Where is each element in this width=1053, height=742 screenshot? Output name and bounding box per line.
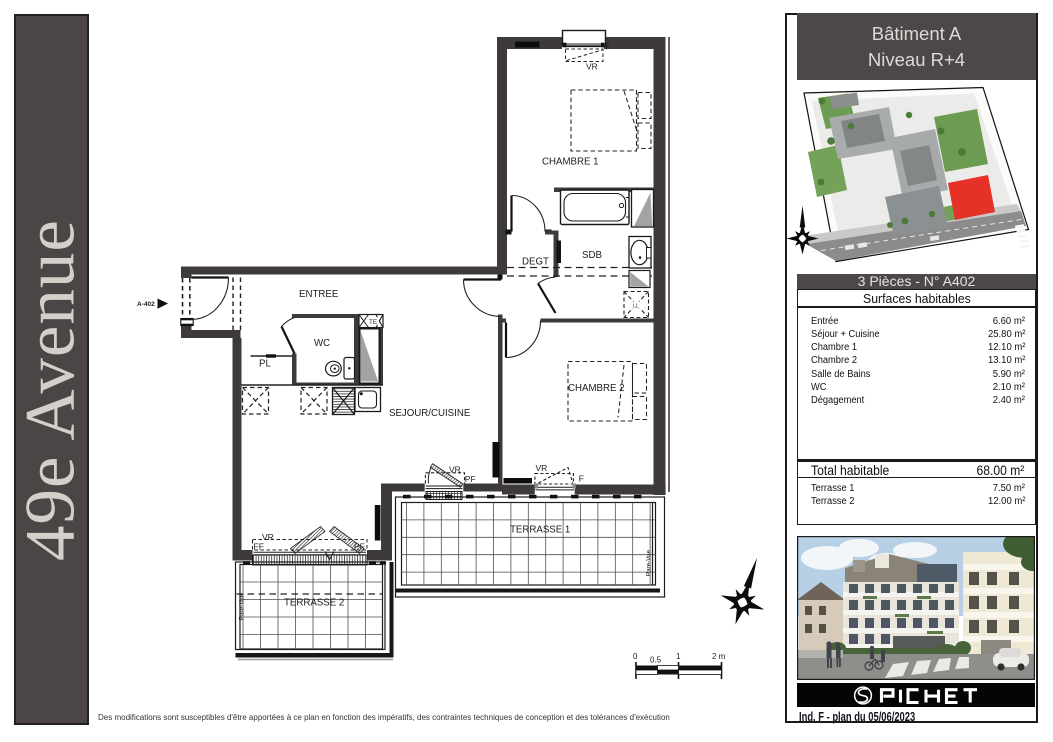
svg-text:2 m: 2 m xyxy=(712,652,726,661)
svg-text:Pare-Vue: Pare-Vue xyxy=(239,593,246,620)
svg-text:TERRASSE 1: TERRASSE 1 xyxy=(510,525,570,536)
svg-text:CHAMBRE 1: CHAMBRE 1 xyxy=(542,157,599,168)
svg-text:VR: VR xyxy=(536,463,548,473)
svg-text:FF: FF xyxy=(254,542,264,552)
svg-text:ENTREE: ENTREE xyxy=(299,289,339,300)
svg-text:1: 1 xyxy=(676,652,681,661)
svg-text:VR: VR xyxy=(449,464,461,474)
svg-text:PL: PL xyxy=(259,359,271,370)
svg-text:PF: PF xyxy=(465,474,476,484)
svg-text:DEGT: DEGT xyxy=(522,257,549,268)
svg-text:F: F xyxy=(606,43,611,52)
svg-text:A-402: A-402 xyxy=(137,301,155,308)
svg-text:WC: WC xyxy=(314,338,330,349)
svg-text:F: F xyxy=(579,474,584,484)
svg-text:0.5: 0.5 xyxy=(650,656,662,665)
svg-text:LL: LL xyxy=(633,304,639,310)
svg-text:VR: VR xyxy=(586,62,598,72)
svg-text:CHAMBRE 2: CHAMBRE 2 xyxy=(568,383,625,394)
svg-text:PF: PF xyxy=(354,542,365,552)
svg-text:0: 0 xyxy=(633,652,638,661)
svg-text:SDB: SDB xyxy=(582,250,602,261)
svg-text:TE: TE xyxy=(369,319,377,326)
svg-text:VR: VR xyxy=(262,532,274,542)
svg-text:SEJOUR/CUISINE: SEJOUR/CUISINE xyxy=(389,408,471,419)
svg-text:Pare-Vue: Pare-Vue xyxy=(646,549,653,576)
svg-text:TERRASSE 2: TERRASSE 2 xyxy=(284,598,344,609)
